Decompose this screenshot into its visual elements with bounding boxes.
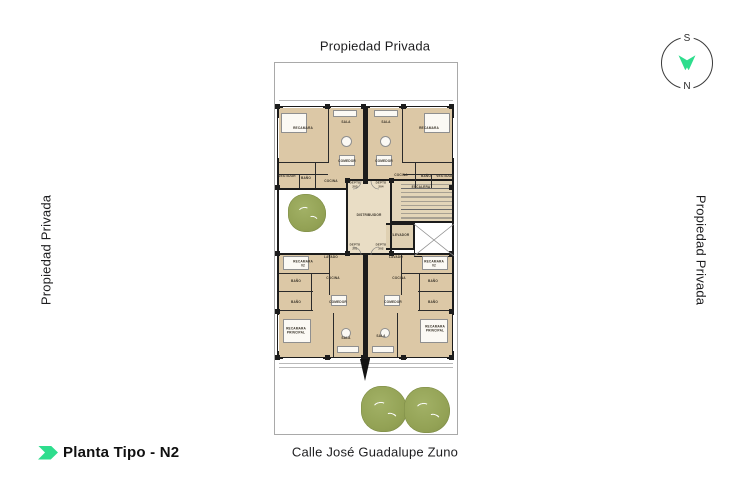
double-chevron-icon <box>38 446 56 460</box>
room-label-text: RECAMARA PRINCIPAL <box>286 327 306 334</box>
room-label-text: RECAMARA 02 <box>424 260 444 267</box>
plan-title-block: Planta Tipo - N2 <box>38 444 179 461</box>
room-label-text: BAÑO <box>428 280 438 284</box>
room-label-text: RECAMARA PRINCIPAL <box>425 325 445 332</box>
room-label-text: SALA <box>376 335 385 339</box>
room-label-text: RECAMARA 02 <box>293 260 313 267</box>
room-label-text: ESCALERA <box>412 186 431 190</box>
room-label-text: RECAMARA <box>293 127 313 131</box>
room-label-text: COMEDOR <box>329 301 347 305</box>
room-label-text: VESTIDOR <box>436 175 454 179</box>
room-label-text: LAVADO <box>389 256 403 260</box>
room-label-text: SALA <box>341 121 350 125</box>
north-arrow-icon <box>679 55 696 70</box>
room-label-text: COMEDOR <box>384 301 402 305</box>
street-name-label: Calle José Guadalupe Zuno <box>292 445 458 460</box>
room-label-text: DISTRIBUIDOR <box>357 214 382 218</box>
room-label-text: SALA <box>381 121 390 125</box>
room-label-text: LAVADO <box>324 256 338 260</box>
room-label-text: COCINA <box>326 277 339 281</box>
propiedad-privada-right-label: Propiedad Privada <box>694 195 709 305</box>
compass-north-label: N <box>680 82 693 92</box>
room-label-text: DEPTO 202 <box>376 243 387 250</box>
compass-circle-icon: S N <box>661 37 713 89</box>
room-label-text: DEPTO 204 <box>376 181 387 188</box>
propiedad-privada-top-label: Propiedad Privada <box>320 39 430 54</box>
propiedad-privada-left-label: Propiedad Privada <box>39 195 54 305</box>
room-label-text: BAÑO <box>291 301 301 305</box>
room-label-text: ELEVADOR <box>391 234 410 238</box>
compass-south-label: S <box>681 34 694 44</box>
room-label-text: BAÑO <box>428 301 438 305</box>
compass: S N <box>661 37 713 89</box>
plan-title: Planta Tipo - N2 <box>63 444 179 461</box>
room-label-text: COMEDOR <box>375 160 393 164</box>
room-label-text: DEPTO 201 <box>350 243 361 250</box>
floor-plan: RECAMARASALACOMEDORVESTIDORBAÑOCOCINASAL… <box>274 62 458 435</box>
room-label-text: BAÑO <box>291 280 301 284</box>
room-label-text: COCINA <box>392 277 405 281</box>
room-label-text: COCINA <box>394 174 407 178</box>
room-label-text: DEPTO 203 <box>350 181 361 188</box>
room-label-text: BAÑO <box>421 175 431 179</box>
room-label-text: VESTIDOR <box>278 175 296 179</box>
room-label-text: COCINA <box>324 180 337 184</box>
room-label-text: BAÑO <box>301 177 311 181</box>
plan-linework <box>275 63 457 434</box>
room-label-text: COMEDOR <box>338 160 356 164</box>
room-label-text: RECAMARA <box>419 127 439 131</box>
room-label-text: SALA <box>341 337 350 341</box>
